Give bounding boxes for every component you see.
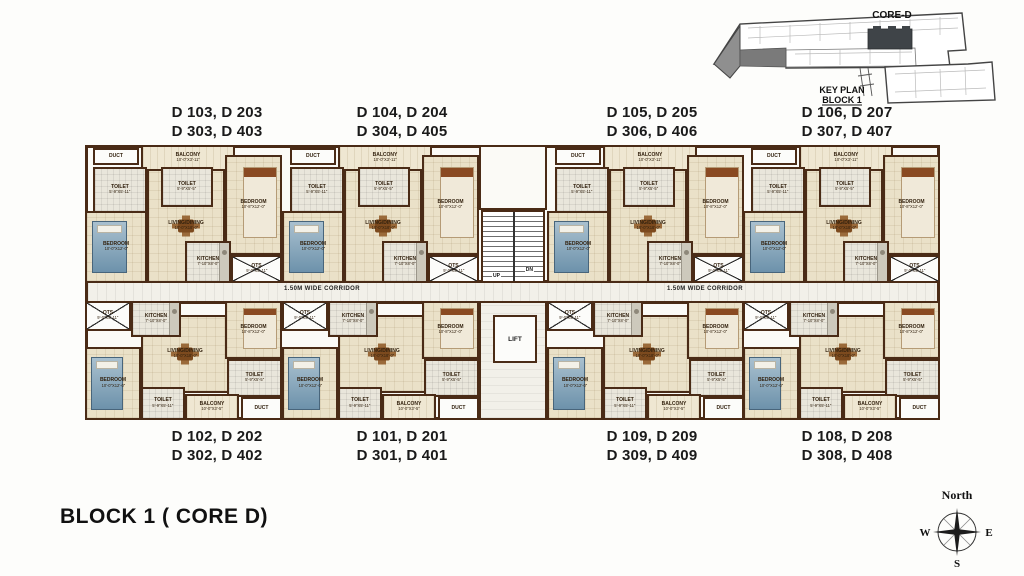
room-duct: DUCT bbox=[241, 397, 282, 420]
room-label-wrap: OTS9'-0"X5'-11" bbox=[891, 257, 938, 281]
unit-label: D 109, D 209D 309, D 409 bbox=[557, 427, 747, 465]
room-dimension: 5'-9"X5'-11" bbox=[306, 191, 327, 195]
room-label-wrap: TOILET5'-9"X5'-11" bbox=[605, 389, 645, 418]
room-label-wrap: TOILET5'-9"X5'-11" bbox=[801, 389, 841, 418]
room-dimension: 5'-9"X5'-5" bbox=[442, 379, 461, 383]
unit-label-line2: D 301, D 401 bbox=[307, 446, 497, 465]
unit-label-line2: D 308, D 408 bbox=[752, 446, 942, 465]
unit-label-line1: D 103, D 203 bbox=[122, 103, 312, 122]
room-bedroom: BEDROOM10'-0"X12'-0" bbox=[547, 347, 603, 420]
room-dimension: 10'-8"X12'-0" bbox=[439, 331, 463, 335]
room-dimension: 10'-0"X3'-5" bbox=[398, 408, 419, 412]
room-ots: OTS9'-0"X5'-11" bbox=[85, 301, 131, 331]
room-bedroom: BEDROOM10'-8"X12'-0" bbox=[687, 155, 744, 255]
room-label-wrap: BEDROOM10'-8"X12'-0" bbox=[424, 157, 477, 253]
room-dimension: 9'-0"X5'-11" bbox=[97, 317, 118, 321]
room-bedroom: BEDROOM10'-8"X12'-0" bbox=[883, 155, 940, 255]
room-balcony: BALCONY10'-0"X3'-11" bbox=[603, 145, 697, 171]
room-label: DUCT bbox=[767, 154, 781, 160]
room-toilet: TOILET5'-9"X5'-5" bbox=[227, 359, 282, 397]
room-dimension: 5'-9"X5'-5" bbox=[177, 188, 196, 192]
room-ots: OTS9'-0"X5'-11" bbox=[889, 255, 940, 283]
room-toilet: TOILET5'-9"X5'-11" bbox=[751, 167, 805, 213]
compass-south-label: S bbox=[954, 558, 960, 570]
compass-north-label: North bbox=[942, 488, 973, 502]
room-dimension: 7'-10"X8'-0" bbox=[342, 320, 363, 324]
room-dimension: 9'-0"X5'-11" bbox=[904, 270, 925, 274]
room-dimension: 9'-0"X5'-11" bbox=[755, 317, 776, 321]
room-duct: DUCT bbox=[93, 148, 139, 165]
room-bedroom: BEDROOM10'-0"X12'-0" bbox=[85, 347, 141, 420]
room-label-wrap: BEDROOM10'-0"X12'-0" bbox=[284, 213, 342, 281]
room-dimension: 5'-9"X5'-11" bbox=[152, 404, 173, 408]
room-bedroom: BEDROOM10'-0"X12'-0" bbox=[743, 211, 805, 283]
unit: LIVING/DINING10'-0"X18'-0"OTS9'-0"X5'-11… bbox=[282, 301, 479, 420]
room-kitchen: KITCHEN7'-10"X8'-0" bbox=[593, 301, 643, 337]
compass-west-label: W bbox=[920, 527, 931, 539]
room-dimension: 10'-8"X12'-0" bbox=[439, 206, 463, 210]
room-dimension: 5'-9"X5'-5" bbox=[245, 379, 264, 383]
key-plan: CORE-D KEY PLAN BLOCK 1 bbox=[700, 4, 1002, 110]
room-label-wrap: KITCHEN7'-10"X8'-0" bbox=[595, 303, 641, 335]
room-bedroom: BEDROOM10'-0"X12'-0" bbox=[743, 347, 799, 420]
room-dimension: 10'-8"X12'-0" bbox=[704, 331, 728, 335]
room-balcony: BALCONY10'-0"X3'-5" bbox=[647, 394, 701, 420]
room-label-wrap: KITCHEN7'-10"X8'-0" bbox=[187, 243, 229, 281]
room-dimension: 9'-0"X5'-11" bbox=[708, 270, 729, 274]
room-label-wrap: BALCONY10'-0"X3'-11" bbox=[801, 147, 891, 169]
room-dimension: 10'-0"X12'-0" bbox=[301, 248, 325, 252]
room-ots: OTS9'-0"X5'-11" bbox=[743, 301, 789, 331]
key-plan-core-label: CORE-D bbox=[872, 10, 911, 21]
room-dimension: 10'-0"X12'-0" bbox=[563, 384, 587, 388]
room-label-wrap: TOILET5'-9"X5'-11" bbox=[753, 169, 803, 211]
room-dimension: 10'-0"X18'-0" bbox=[174, 227, 198, 231]
unit-label-line1: D 108, D 208 bbox=[752, 427, 942, 446]
room-dimension: 5'-9"X5'-5" bbox=[639, 188, 658, 192]
unit: LIVING/DINING10'-0"X18'-0"BALCONY10'-0"X… bbox=[743, 145, 940, 283]
room-ots: OTS9'-0"X5'-11" bbox=[547, 301, 593, 331]
room-toilet: TOILET5'-9"X5'-11" bbox=[290, 167, 344, 213]
room-label-wrap: BALCONY10'-0"X3'-11" bbox=[143, 147, 233, 169]
unit: LIVING/DINING10'-0"X18'-0"BALCONY10'-0"X… bbox=[282, 145, 479, 283]
room-label-wrap: OTS9'-0"X5'-11" bbox=[745, 303, 787, 329]
compass-east-label: E bbox=[985, 527, 992, 539]
unit-label-line2: D 307, D 407 bbox=[752, 122, 942, 141]
room-dimension: 7'-10"X8'-0" bbox=[803, 320, 824, 324]
room-label-wrap: BEDROOM10'-0"X12'-0" bbox=[549, 213, 607, 281]
room-toilet: TOILET5'-9"X5'-11" bbox=[799, 387, 843, 420]
room-label-wrap: BEDROOM10'-0"X12'-0" bbox=[549, 349, 601, 418]
room-dimension: 7'-10"X8'-0" bbox=[197, 263, 218, 267]
room-label: DUCT bbox=[255, 406, 269, 412]
room-label-wrap: KITCHEN7'-10"X8'-0" bbox=[791, 303, 837, 335]
room-dimension: 10'-0"X3'-5" bbox=[663, 408, 684, 412]
room-label-wrap: OTS9'-0"X5'-11" bbox=[695, 257, 742, 281]
key-plan-drawing: CORE-D KEY PLAN BLOCK 1 bbox=[700, 4, 1002, 110]
room-dimension: 10'-0"X3'-11" bbox=[373, 159, 396, 163]
room-dimension: 10'-0"X12'-0" bbox=[762, 248, 786, 252]
room-dimension: 7'-10"X8'-0" bbox=[607, 320, 628, 324]
room-dimension: 5'-9"X5'-11" bbox=[109, 191, 130, 195]
room-label-wrap: TOILET5'-9"X5'-11" bbox=[292, 169, 342, 211]
room-label-wrap: BEDROOM10'-8"X12'-0" bbox=[689, 303, 742, 357]
room-label: DUCT bbox=[913, 406, 927, 412]
unit-label-line1: D 106, D 207 bbox=[752, 103, 942, 122]
unit: LIVING/DINING10'-0"X18'-0"BALCONY10'-0"X… bbox=[547, 145, 743, 283]
room-label-wrap: TOILET5'-9"X5'-5" bbox=[360, 169, 408, 205]
room-label-wrap: BALCONY10'-0"X3'-5" bbox=[845, 396, 895, 418]
unit-label-line2: D 304, D 405 bbox=[307, 122, 497, 141]
room-label-wrap: OTS9'-0"X5'-11" bbox=[284, 303, 326, 329]
room-toilet: TOILET5'-9"X5'-5" bbox=[358, 167, 410, 207]
unit-label: D 105, D 205D 306, D 406 bbox=[557, 103, 747, 141]
corridor-label-left: 1.50M WIDE CORRIDOR bbox=[284, 286, 360, 292]
room-balcony: BALCONY10'-0"X3'-5" bbox=[185, 394, 239, 420]
room-dimension: 9'-0"X5'-11" bbox=[443, 270, 464, 274]
room-label-wrap: DUCT bbox=[243, 399, 280, 418]
room-balcony: BALCONY10'-0"X3'-5" bbox=[843, 394, 897, 420]
room-label-wrap: DUCT bbox=[292, 150, 334, 163]
room-dimension: 10'-0"X12'-0" bbox=[101, 384, 125, 388]
room-dimension: 7'-10"X8'-0" bbox=[394, 263, 415, 267]
room-label-wrap: BALCONY10'-0"X3'-11" bbox=[605, 147, 695, 169]
room-ots: OTS9'-0"X5'-11" bbox=[693, 255, 744, 283]
room-dimension: 7'-10"X8'-0" bbox=[855, 263, 876, 267]
room-label-wrap: TOILET5'-9"X5'-11" bbox=[95, 169, 145, 211]
room-dimension: 5'-9"X5'-5" bbox=[903, 379, 922, 383]
room-label: DUCT bbox=[571, 154, 585, 160]
room-label-wrap: TOILET5'-9"X5'-11" bbox=[557, 169, 607, 211]
unit-label: D 104, D 204D 304, D 405 bbox=[307, 103, 497, 141]
room-dimension: 5'-9"X5'-11" bbox=[349, 404, 370, 408]
stairs-up-label: UP bbox=[492, 273, 501, 279]
room-label-wrap: BALCONY10'-0"X3'-5" bbox=[384, 396, 434, 418]
room-label-wrap: DUCT bbox=[440, 399, 477, 418]
compass: North W E S bbox=[912, 484, 1002, 572]
unit: LIVING/DINING10'-0"X18'-0"OTS9'-0"X5'-11… bbox=[547, 301, 743, 420]
room-dimension: 10'-0"X12'-0" bbox=[759, 384, 783, 388]
room-label-wrap: BEDROOM10'-8"X12'-0" bbox=[885, 303, 938, 357]
room-label-wrap: TOILET5'-9"X5'-11" bbox=[340, 389, 380, 418]
room-label-wrap: BEDROOM10'-0"X12'-0" bbox=[284, 349, 336, 418]
floor-plan-canvas: CORE-D KEY PLAN BLOCK 1 1.50M WIDE CORRI… bbox=[0, 0, 1024, 576]
room-dimension: 9'-0"X5'-11" bbox=[559, 317, 580, 321]
room-label-wrap: KITCHEN7'-10"X8'-0" bbox=[845, 243, 887, 281]
room-toilet: TOILET5'-9"X5'-11" bbox=[555, 167, 609, 213]
lift: LIFT bbox=[493, 315, 537, 363]
room-dimension: 10'-0"X12'-0" bbox=[104, 248, 128, 252]
room-dimension: 10'-8"X12'-0" bbox=[900, 206, 924, 210]
room-label-wrap: TOILET5'-9"X5'-5" bbox=[163, 169, 211, 205]
room-label-wrap: KITCHEN7'-10"X8'-0" bbox=[133, 303, 179, 335]
unit-label-line2: D 306, D 406 bbox=[557, 122, 747, 141]
room-balcony: BALCONY10'-0"X3'-11" bbox=[141, 145, 235, 171]
room-label-wrap: KITCHEN7'-10"X8'-0" bbox=[384, 243, 426, 281]
room-label-wrap: BEDROOM10'-0"X12'-0" bbox=[87, 213, 145, 281]
room-dimension: 5'-9"X5'-11" bbox=[614, 404, 635, 408]
room-label-wrap: TOILET5'-9"X5'-11" bbox=[143, 389, 183, 418]
corridor-label-right: 1.50M WIDE CORRIDOR bbox=[667, 286, 743, 292]
unit-label-line1: D 102, D 202 bbox=[122, 427, 312, 446]
room-toilet: TOILET5'-9"X5'-5" bbox=[424, 359, 479, 397]
room-dimension: 5'-9"X5'-11" bbox=[810, 404, 831, 408]
room-label-wrap: TOILET5'-9"X5'-5" bbox=[691, 361, 742, 395]
room-bedroom: BEDROOM10'-0"X12'-0" bbox=[547, 211, 609, 283]
room-dimension: 10'-8"X12'-0" bbox=[242, 206, 266, 210]
room-bedroom: BEDROOM10'-8"X12'-0" bbox=[225, 155, 282, 255]
room-label-wrap: BEDROOM10'-8"X12'-0" bbox=[885, 157, 938, 253]
room-label-wrap: BEDROOM10'-0"X12'-0" bbox=[745, 213, 803, 281]
room-balcony: BALCONY10'-0"X3'-5" bbox=[382, 394, 436, 420]
unit-label-line1: D 105, D 205 bbox=[557, 103, 747, 122]
unit: LIVING/DINING10'-0"X18'-0"OTS9'-0"X5'-11… bbox=[743, 301, 940, 420]
room-bedroom: BEDROOM10'-8"X12'-0" bbox=[422, 301, 479, 359]
corridor bbox=[85, 283, 940, 301]
unit-label-line1: D 104, D 204 bbox=[307, 103, 497, 122]
unit: LIVING/DINING10'-0"X18'-0"OTS9'-0"X5'-11… bbox=[85, 301, 282, 420]
room-label-wrap: OTS9'-0"X5'-11" bbox=[233, 257, 280, 281]
room-label-wrap: TOILET5'-9"X5'-5" bbox=[625, 169, 673, 205]
room-dimension: 7'-10"X8'-0" bbox=[659, 263, 680, 267]
room-label-wrap: KITCHEN7'-10"X8'-0" bbox=[330, 303, 376, 335]
key-plan-caption-1: KEY PLAN bbox=[819, 85, 864, 95]
room-label-wrap: DUCT bbox=[705, 399, 742, 418]
room-kitchen: KITCHEN7'-10"X8'-0" bbox=[185, 241, 231, 283]
room-dimension: 10'-0"X18'-0" bbox=[831, 355, 855, 359]
room-dimension: 10'-0"X3'-11" bbox=[176, 159, 199, 163]
room-ots: OTS9'-0"X5'-11" bbox=[231, 255, 282, 283]
room-duct: DUCT bbox=[899, 397, 940, 420]
room-bedroom: BEDROOM10'-0"X12'-0" bbox=[282, 347, 338, 420]
room-label-wrap: BEDROOM10'-8"X12'-0" bbox=[227, 157, 280, 253]
room-dimension: 10'-0"X3'-11" bbox=[638, 159, 661, 163]
room-duct: DUCT bbox=[751, 148, 797, 165]
room-dimension: 10'-8"X12'-0" bbox=[242, 331, 266, 335]
staircase: UP DN bbox=[481, 210, 545, 283]
room-dimension: 5'-9"X5'-5" bbox=[707, 379, 726, 383]
room-toilet: TOILET5'-9"X5'-5" bbox=[689, 359, 744, 397]
room-dimension: 10'-0"X12'-0" bbox=[566, 248, 590, 252]
room-ots: OTS9'-0"X5'-11" bbox=[428, 255, 479, 283]
room-balcony: BALCONY10'-0"X3'-11" bbox=[799, 145, 893, 171]
room-ots: OTS9'-0"X5'-11" bbox=[282, 301, 328, 331]
unit-label-line1: D 101, D 201 bbox=[307, 427, 497, 446]
unit-label-line2: D 309, D 409 bbox=[557, 446, 747, 465]
room-label-wrap: BEDROOM10'-0"X12'-0" bbox=[745, 349, 797, 418]
room-toilet: TOILET5'-9"X5'-5" bbox=[819, 167, 871, 207]
room-dimension: 10'-0"X18'-0" bbox=[173, 355, 197, 359]
room-dimension: 9'-0"X5'-11" bbox=[294, 317, 315, 321]
block-title: BLOCK 1 ( CORE D) bbox=[60, 505, 268, 529]
unit: LIVING/DINING10'-0"X18'-0"BALCONY10'-0"X… bbox=[85, 145, 282, 283]
room-label: DUCT bbox=[109, 154, 123, 160]
room-dimension: 10'-8"X12'-0" bbox=[704, 206, 728, 210]
room-label-wrap: TOILET5'-9"X5'-5" bbox=[426, 361, 477, 395]
room-dimension: 7'-10"X8'-0" bbox=[145, 320, 166, 324]
room-toilet: TOILET5'-9"X5'-11" bbox=[603, 387, 647, 420]
room-duct: DUCT bbox=[555, 148, 601, 165]
room-dimension: 9'-0"X5'-11" bbox=[246, 270, 267, 274]
room-duct: DUCT bbox=[703, 397, 744, 420]
room-label-wrap: TOILET5'-9"X5'-5" bbox=[821, 169, 869, 205]
room-kitchen: KITCHEN7'-10"X8'-0" bbox=[647, 241, 693, 283]
room-toilet: TOILET5'-9"X5'-11" bbox=[338, 387, 382, 420]
room-dimension: 10'-0"X18'-0" bbox=[832, 227, 856, 231]
room-duct: DUCT bbox=[438, 397, 479, 420]
room-label-wrap: BEDROOM10'-8"X12'-0" bbox=[424, 303, 477, 357]
compass-rose-icon: North W E S bbox=[912, 484, 1002, 572]
room-dimension: 10'-0"X18'-0" bbox=[636, 227, 660, 231]
room-label-wrap: BEDROOM10'-8"X12'-0" bbox=[689, 157, 742, 253]
room-label: DUCT bbox=[306, 154, 320, 160]
room-toilet: TOILET5'-9"X5'-11" bbox=[141, 387, 185, 420]
room-kitchen: KITCHEN7'-10"X8'-0" bbox=[328, 301, 378, 337]
room-label-wrap: BALCONY10'-0"X3'-5" bbox=[187, 396, 237, 418]
room-label-wrap: BALCONY10'-0"X3'-5" bbox=[649, 396, 699, 418]
unit-label: D 108, D 208D 308, D 408 bbox=[752, 427, 942, 465]
room-dimension: 10'-0"X18'-0" bbox=[370, 355, 394, 359]
unit-label: D 106, D 207D 307, D 407 bbox=[752, 103, 942, 141]
room-bedroom: BEDROOM10'-8"X12'-0" bbox=[225, 301, 282, 359]
unit-label-line2: D 302, D 402 bbox=[122, 446, 312, 465]
room-bedroom: BEDROOM10'-0"X12'-0" bbox=[85, 211, 147, 283]
room-label-wrap: OTS9'-0"X5'-11" bbox=[549, 303, 591, 329]
room-label-wrap: TOILET5'-9"X5'-5" bbox=[229, 361, 280, 395]
room-label-wrap: TOILET5'-9"X5'-5" bbox=[887, 361, 938, 395]
room-dimension: 10'-0"X18'-0" bbox=[635, 355, 659, 359]
unit-label: D 102, D 202D 302, D 402 bbox=[122, 427, 312, 465]
room-bedroom: BEDROOM10'-8"X12'-0" bbox=[883, 301, 940, 359]
unit-label: D 101, D 201D 301, D 401 bbox=[307, 427, 497, 465]
room-label-wrap: DUCT bbox=[753, 150, 795, 163]
lift-lobby: LIFT bbox=[479, 301, 547, 420]
room-label-wrap: BEDROOM10'-8"X12'-0" bbox=[227, 303, 280, 357]
room-label-wrap: DUCT bbox=[557, 150, 599, 163]
room-bedroom: BEDROOM10'-0"X12'-0" bbox=[282, 211, 344, 283]
stairs-dn-label: DN bbox=[525, 267, 534, 273]
room-label-wrap: BALCONY10'-0"X3'-11" bbox=[340, 147, 430, 169]
room-label-wrap: BEDROOM10'-0"X12'-0" bbox=[87, 349, 139, 418]
room-toilet: TOILET5'-9"X5'-11" bbox=[93, 167, 147, 213]
room-dimension: 10'-0"X18'-0" bbox=[371, 227, 395, 231]
unit-label-line2: D 303, D 403 bbox=[122, 122, 312, 141]
room-toilet: TOILET5'-9"X5'-5" bbox=[623, 167, 675, 207]
unit-label: D 103, D 203D 303, D 403 bbox=[122, 103, 312, 141]
room-balcony: BALCONY10'-0"X3'-11" bbox=[338, 145, 432, 171]
room-kitchen: KITCHEN7'-10"X8'-0" bbox=[789, 301, 839, 337]
room-dimension: 5'-9"X5'-5" bbox=[374, 188, 393, 192]
room-label-wrap: DUCT bbox=[901, 399, 938, 418]
room-kitchen: KITCHEN7'-10"X8'-0" bbox=[131, 301, 181, 337]
room-bedroom: BEDROOM10'-8"X12'-0" bbox=[687, 301, 744, 359]
room-label-wrap: DUCT bbox=[95, 150, 137, 163]
room-toilet: TOILET5'-9"X5'-5" bbox=[161, 167, 213, 207]
room-toilet: TOILET5'-9"X5'-5" bbox=[885, 359, 940, 397]
room-dimension: 5'-9"X5'-11" bbox=[767, 191, 788, 195]
room-label-wrap: KITCHEN7'-10"X8'-0" bbox=[649, 243, 691, 281]
room-dimension: 10'-0"X12'-0" bbox=[298, 384, 322, 388]
room-label: DUCT bbox=[452, 406, 466, 412]
room-dimension: 5'-9"X5'-11" bbox=[571, 191, 592, 195]
room-duct: DUCT bbox=[290, 148, 336, 165]
room-dimension: 10'-0"X3'-11" bbox=[834, 159, 857, 163]
room-dimension: 10'-8"X12'-0" bbox=[900, 331, 924, 335]
room-kitchen: KITCHEN7'-10"X8'-0" bbox=[843, 241, 889, 283]
room-bedroom: BEDROOM10'-8"X12'-0" bbox=[422, 155, 479, 255]
stair-shaft bbox=[479, 145, 547, 210]
room-label-wrap: OTS9'-0"X5'-11" bbox=[87, 303, 129, 329]
room-label-wrap: OTS9'-0"X5'-11" bbox=[430, 257, 477, 281]
unit-label-line1: D 109, D 209 bbox=[557, 427, 747, 446]
room-dimension: 10'-0"X3'-5" bbox=[859, 408, 880, 412]
room-label: DUCT bbox=[717, 406, 731, 412]
room-kitchen: KITCHEN7'-10"X8'-0" bbox=[382, 241, 428, 283]
room-dimension: 10'-0"X3'-5" bbox=[201, 408, 222, 412]
room-dimension: 5'-9"X5'-5" bbox=[835, 188, 854, 192]
